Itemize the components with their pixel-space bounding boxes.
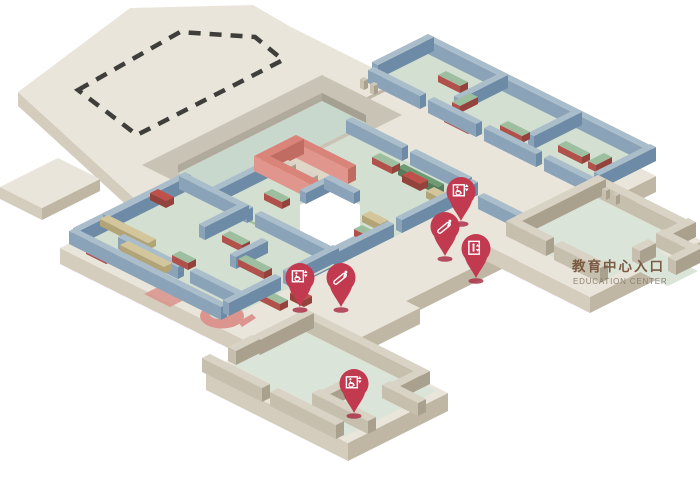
education-center-label: 教育中心入口 EDUCATION CENTER bbox=[572, 258, 667, 286]
pin-shadow bbox=[334, 307, 349, 313]
pin-shadow bbox=[469, 278, 484, 284]
pin-shadow bbox=[293, 307, 308, 313]
education-center-label-en: EDUCATION CENTER bbox=[573, 277, 667, 286]
pin-shadow bbox=[438, 256, 453, 262]
museum-floor-map: 教育中心入口 EDUCATION CENTER bbox=[0, 0, 700, 494]
education-center-label-zh: 教育中心入口 bbox=[572, 258, 665, 275]
pin-shadow bbox=[347, 413, 362, 419]
museum-map-canvas: 教育中心入口 EDUCATION CENTER bbox=[0, 0, 700, 494]
